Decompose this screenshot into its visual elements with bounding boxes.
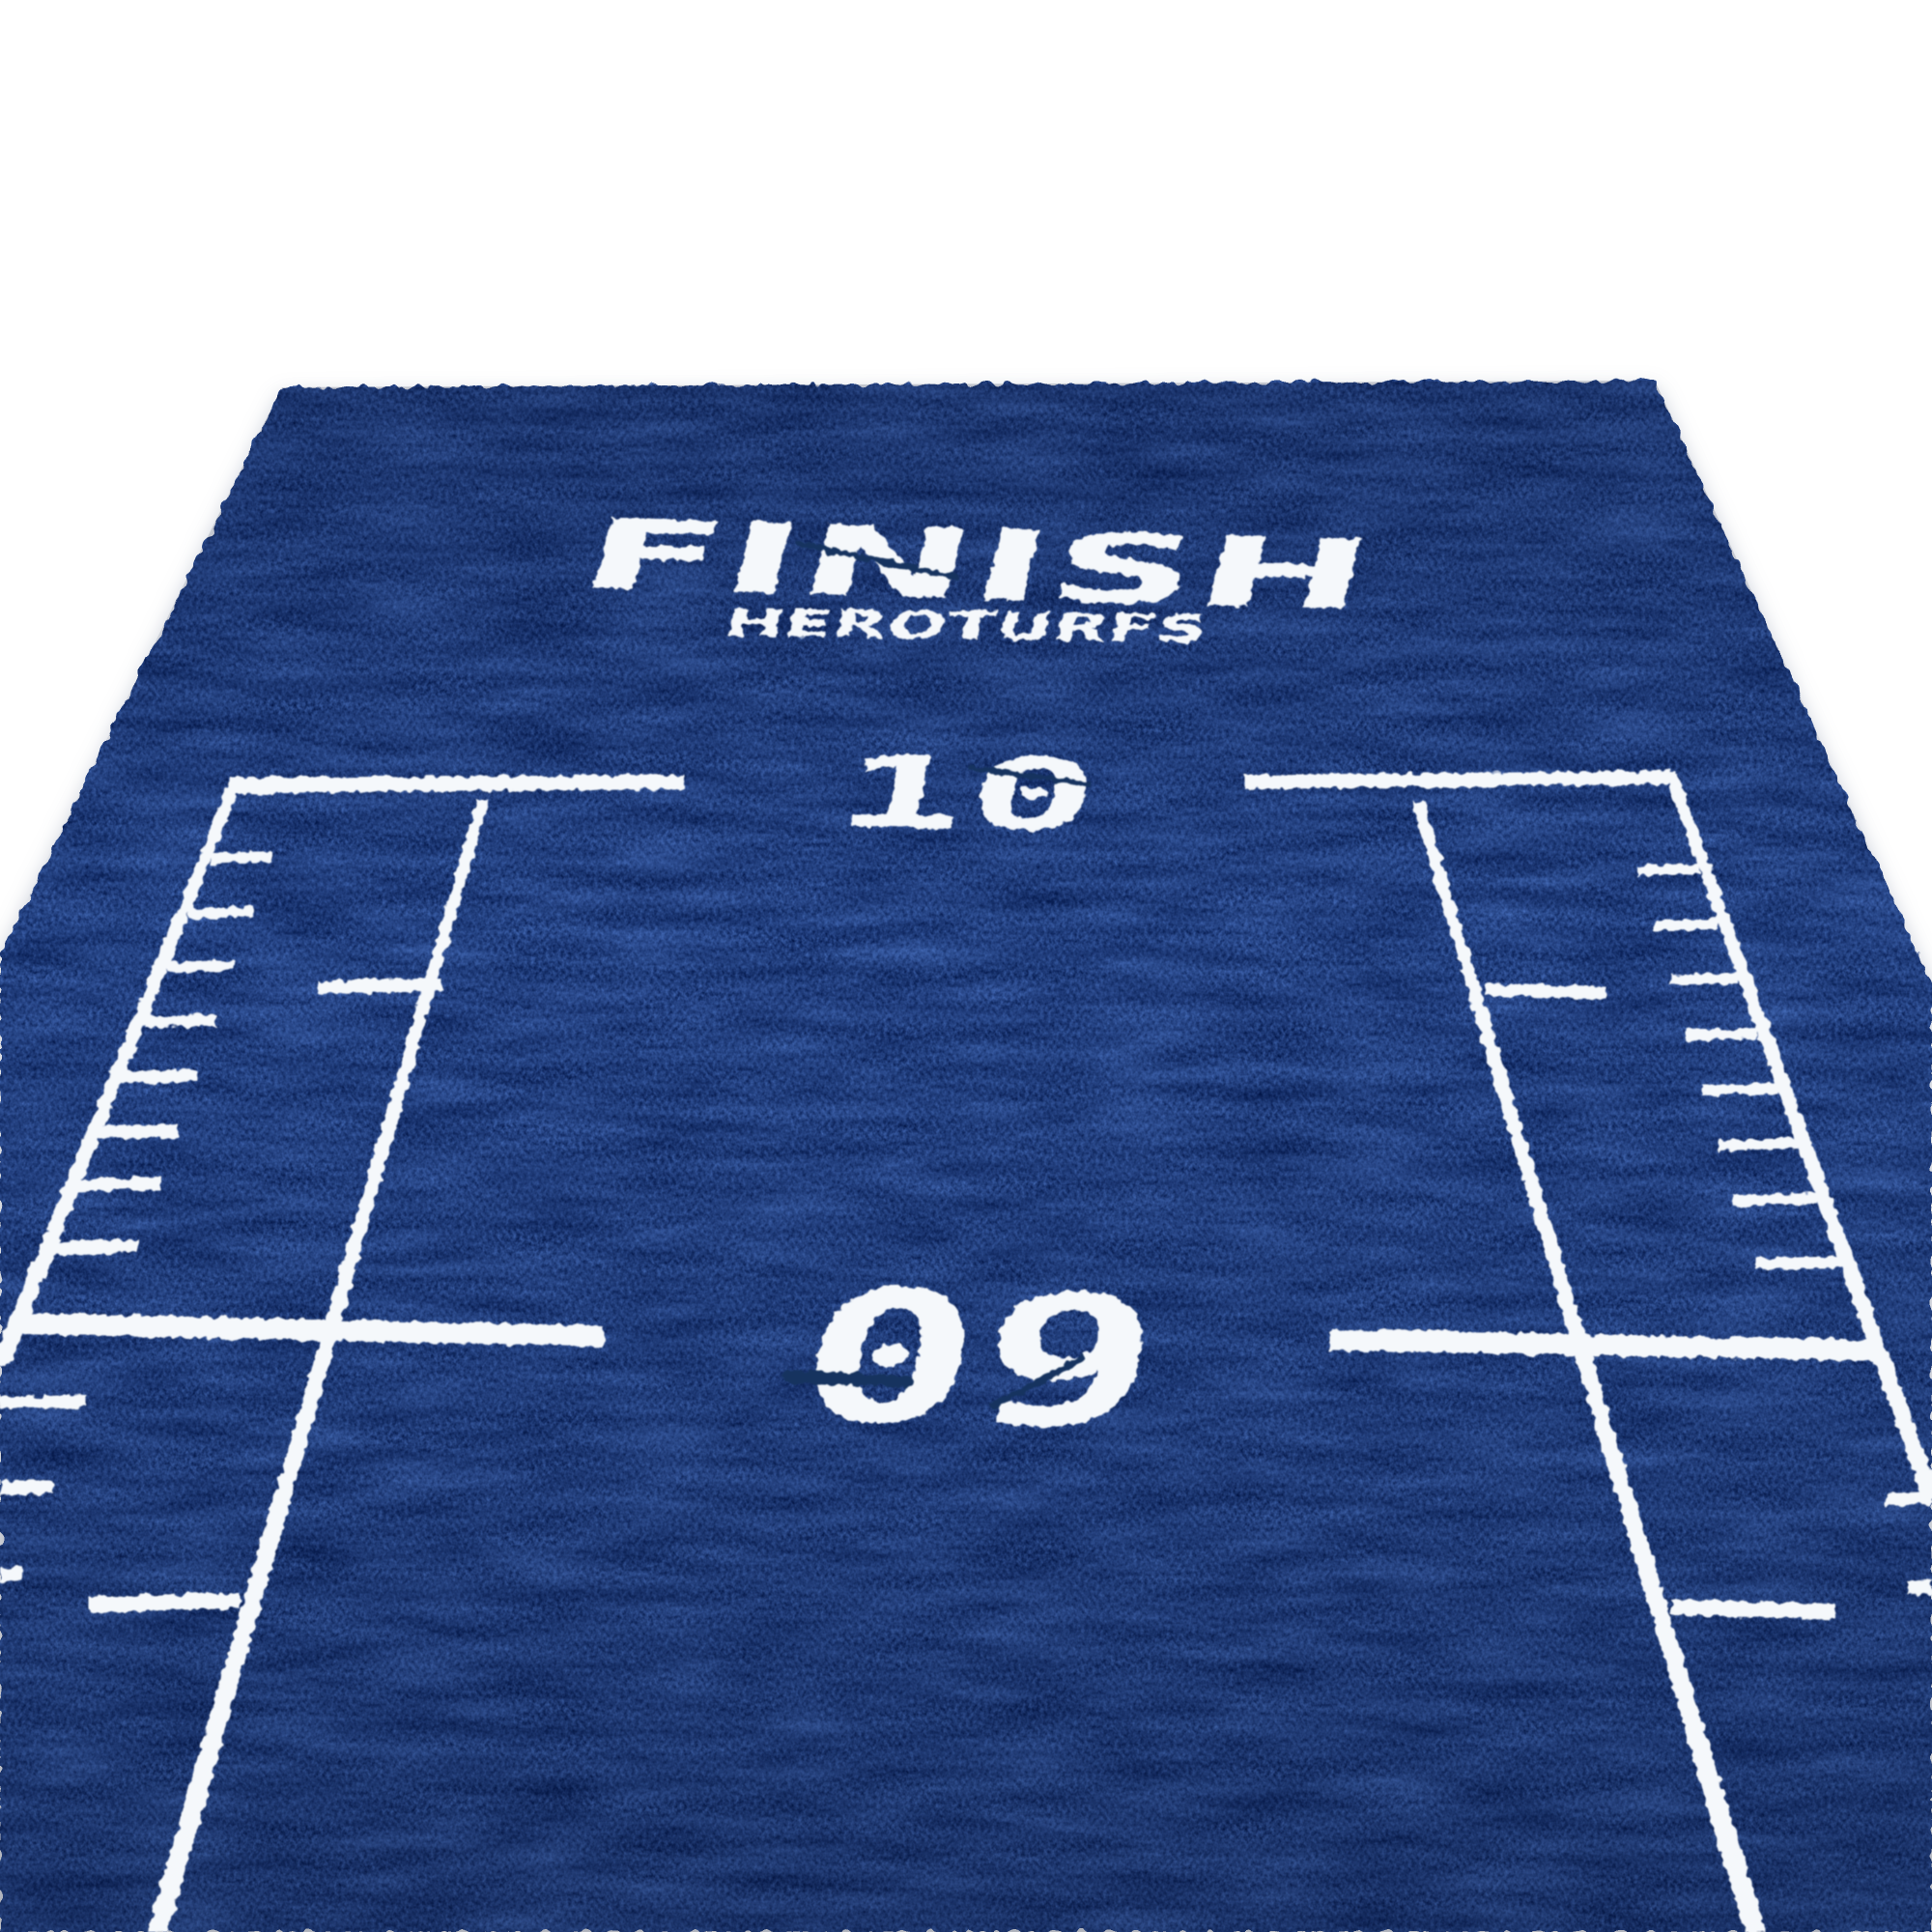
tick-mark xyxy=(99,1124,179,1139)
tick-mark xyxy=(1686,1028,1757,1040)
tick-mark xyxy=(189,906,253,919)
tick-mark xyxy=(1654,919,1718,931)
tick-mark xyxy=(1670,973,1738,985)
tick-mark xyxy=(1886,1492,1932,1506)
tick-mark xyxy=(78,1177,161,1191)
tick-mark xyxy=(0,1480,53,1495)
tick-mark xyxy=(52,1239,139,1256)
tick-mark xyxy=(212,851,271,864)
tick-mark xyxy=(0,1395,86,1409)
brand-text: HEROTURFS xyxy=(720,600,1214,652)
tick-mark xyxy=(0,1566,21,1582)
tick-mark xyxy=(1719,1138,1798,1151)
tick-mark xyxy=(1734,1193,1817,1206)
turf-mat-photo: FINISH HEROTURFS 10 09 xyxy=(0,0,1932,1932)
tick-mark xyxy=(167,960,235,973)
distance-marker-09: 09 xyxy=(779,1251,1179,1469)
tick-mark xyxy=(1638,864,1698,876)
stencil-cut-zero-09 xyxy=(790,1377,906,1381)
tick-mark xyxy=(122,1069,197,1083)
tick-mark xyxy=(1702,1083,1777,1095)
tick-mark xyxy=(1907,1579,1932,1596)
product-photo-stage: FINISH HEROTURFS 10 09 xyxy=(0,0,1932,1932)
distance-marker-10: 10 xyxy=(826,735,1109,854)
tick-mark xyxy=(145,1014,216,1028)
tick-mark xyxy=(1755,1257,1840,1269)
